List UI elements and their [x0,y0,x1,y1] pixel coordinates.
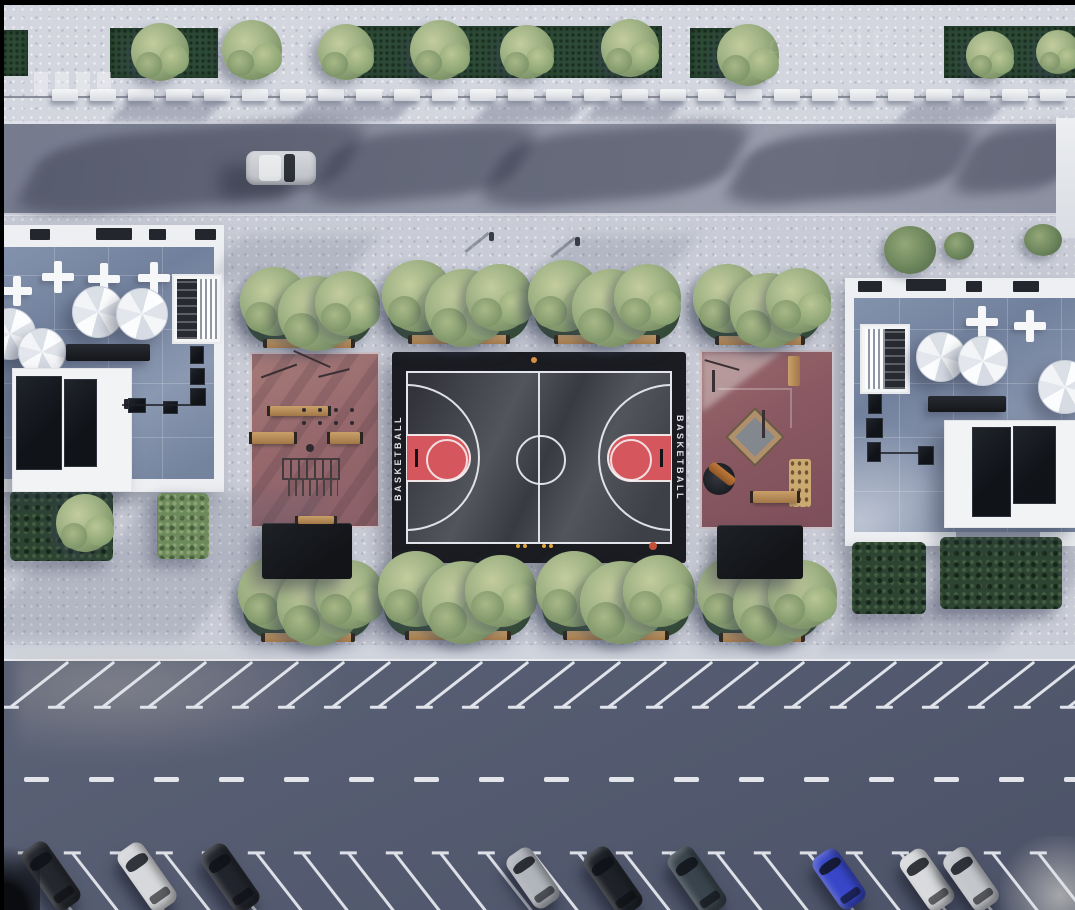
street-bench [242,89,268,101]
parking-stall-line [761,852,815,910]
planter-island [542,569,690,637]
lane-marking [479,777,504,782]
street-bench [90,89,116,101]
roof-bench [928,396,1006,412]
pedestrian [575,237,580,246]
backboard-left [415,449,418,467]
court-marker [542,544,546,548]
tree-shadow-road [717,119,985,210]
street-tree [131,23,189,81]
planter-island [698,280,822,342]
crosswalk-stripe [76,72,90,96]
balcony-edge [906,279,946,291]
bench [298,516,334,524]
roof-table [2,276,32,306]
watermark-text: ONE [807,24,900,61]
court-marker [516,544,520,548]
court-surface [406,371,672,544]
plaza-shadow [0,556,253,640]
roof-table [1014,310,1046,342]
street-bench [394,89,420,101]
lane-marking [544,777,569,782]
parking-stall-line [347,852,401,910]
tree-shadow [292,102,413,122]
monkey-bars [282,458,340,480]
post [350,421,354,425]
swing-post [712,370,715,392]
post [302,408,306,412]
backboard-right [660,449,663,467]
planter-tree [465,555,536,626]
tree-shadow [474,102,587,122]
street-bench [1002,89,1028,101]
lane-marking [674,777,699,782]
hedge [940,537,1062,609]
roof-bench [66,344,150,361]
street-bench [850,89,876,101]
parked-car [503,844,563,910]
lane-marking [609,777,634,782]
lane-marking [284,777,309,782]
lane-marking [349,777,374,782]
sunlit-patch [1000,836,1075,910]
lane-marking [24,777,49,782]
street-bench [660,89,686,101]
planter-tree [766,268,831,333]
hedge [157,493,209,559]
conduit [122,404,190,406]
street-bench [964,89,990,101]
planter-tree [623,555,694,626]
roof-table [42,261,74,293]
left-border [0,0,4,910]
tree-shadow [584,102,683,120]
roof-pergola [860,324,910,394]
lane-marking [934,777,959,782]
play-frame [718,388,792,390]
street-bench [432,89,458,101]
lane-marking [414,777,439,782]
balcony-edge [195,229,216,240]
hvac-unit [190,368,205,385]
street-tree [318,24,374,80]
watermark-house-icon: ⌂ [768,24,795,61]
parked-car [580,843,646,910]
planter-island [534,277,680,341]
lane-marking [739,777,764,782]
street-bench [318,89,344,101]
tree-shadow [109,100,223,122]
parked-car [114,839,180,910]
court-marker [523,544,527,548]
skylight-panel [1013,426,1056,504]
roof-umbrella [958,336,1008,386]
lane-marking [804,777,829,782]
free-throw-circle [426,439,468,481]
curb-line [0,213,1075,216]
plaza-bush [1024,224,1062,256]
lane-marking [1064,777,1075,782]
lane-marking [219,777,244,782]
planter-island [245,283,373,345]
skylight-panel [972,427,1011,517]
play-pole [762,410,765,438]
parking-stall-line [301,852,355,910]
court-label-left: BASKETBALL [393,415,403,501]
hedge [852,542,926,614]
post [318,408,322,412]
pedestrian-shadow [464,232,489,253]
roof-pergola [172,274,222,344]
median-island [1056,118,1075,238]
planter-island [388,277,530,341]
crosswalk-stripe [34,72,48,96]
pedestrian [489,232,494,241]
post [334,408,338,412]
lane-marking [154,777,179,782]
shade-canopy [262,523,352,579]
fitness-rack [288,478,338,496]
planter-island [702,573,822,639]
planter-tree [614,264,681,331]
street-tree [410,20,470,80]
street-bench [812,89,838,101]
roof-table [966,306,998,338]
street-bench [470,89,496,101]
planter-tree [315,271,380,336]
post [334,421,338,425]
court-marker [649,542,657,550]
balcony-edge [966,281,982,292]
tree-shadow [897,102,1006,122]
lane-marking [89,777,114,782]
hvac-unit [190,388,206,406]
hvac-unit [868,394,882,414]
street-bench [888,89,914,101]
basketball-court: BASKETBALL BASKETBALL [392,352,686,563]
street-bench [508,89,534,101]
balcony-edge [1013,281,1039,292]
roof-edge [845,278,854,546]
hvac-unit [866,418,883,438]
hvac-unit [163,401,178,414]
bench [330,432,360,444]
court-marker [531,357,537,363]
bench [753,491,797,503]
hvac-unit [918,446,934,465]
balcony-edge [858,281,882,292]
conduit [880,452,920,454]
parking-stall-line [1021,661,1075,709]
planter-island [384,569,532,637]
street-tree [1036,30,1075,74]
parked-car [809,845,869,910]
post [318,421,322,425]
court-marker [549,544,553,548]
street-bench [698,89,724,101]
aerial-render-scene: BASKETBALL BASKETBALL ⌂ ONE [0,0,1075,910]
lane-marking [869,777,894,782]
skylight-panel [16,376,62,470]
parking-stall-line [255,852,309,910]
parking-stall-line [439,852,493,910]
street-tree [500,25,554,79]
street-bench [356,89,382,101]
street-tree [966,31,1014,79]
street-bench [52,89,78,101]
bench [252,432,294,444]
plaza-bush [884,226,936,274]
street-tree [222,20,282,80]
post [306,444,314,452]
street-bench [280,89,306,101]
planter-island [243,573,373,639]
top-border [0,0,1075,5]
bench [788,356,800,386]
street-tree [601,19,659,77]
skylight-panel [64,379,97,467]
grass-strip [2,30,28,76]
tree-shadow-road [6,113,376,222]
street-bench [1040,89,1066,101]
shade-canopy [717,525,803,579]
free-throw-circle [610,439,652,481]
street-bench [546,89,572,101]
post [302,421,306,425]
car-on-street [246,151,316,185]
balcony-edge [30,229,50,240]
court-label-right: BASKETBALL [675,415,685,501]
street-bench [736,89,762,101]
watermark: ⌂ ONE [768,24,901,61]
plaza-bush [944,232,974,260]
hvac-unit [190,346,204,364]
center-circle [516,435,566,485]
street-bench [926,89,952,101]
hedge-tree [56,494,114,552]
hvac-unit [867,442,881,462]
balcony-edge [149,229,166,240]
street-bench [622,89,648,101]
planter-tree [466,264,533,331]
balcony-edge [96,228,132,240]
street-bench [584,89,610,101]
corner-shadow [0,832,40,910]
sunlit-patch [16,654,352,764]
roof-umbrella [116,288,168,340]
street-bench [774,89,800,101]
post [350,408,354,412]
lane-marking [999,777,1024,782]
play-frame [790,390,792,428]
parking-stall-line [393,852,447,910]
